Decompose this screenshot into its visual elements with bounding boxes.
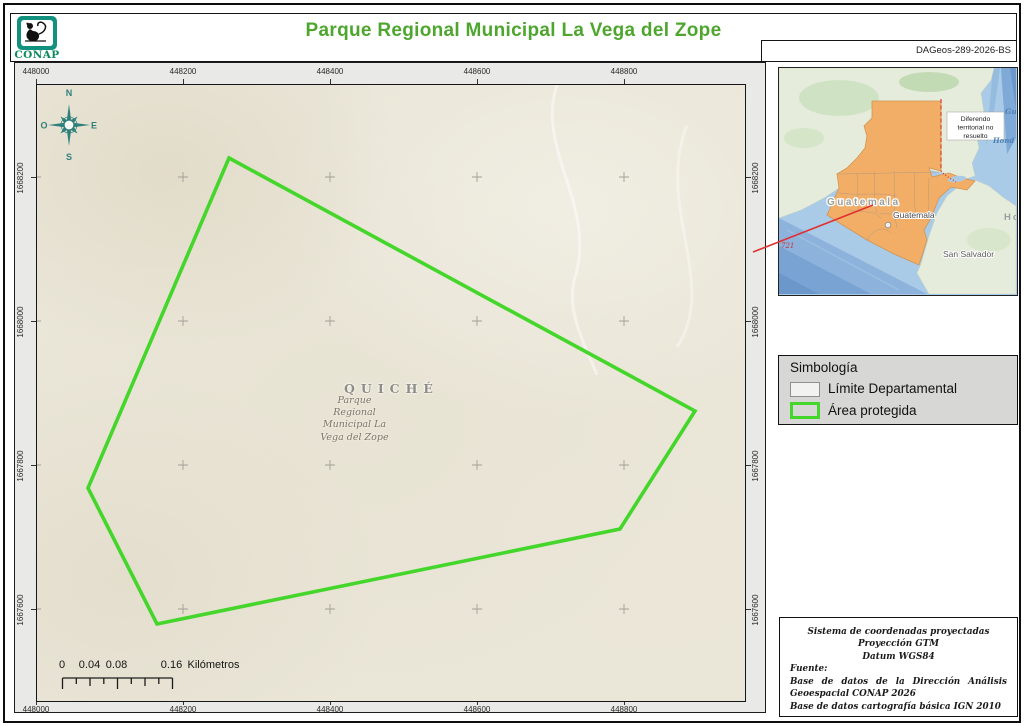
scale-label: 0.04 [76,659,104,671]
grid-label-left: 1667800 [16,444,26,488]
grid-label-left: 1667600 [16,588,26,632]
scale-label: 0.16 [158,659,186,671]
protected-area-label: Parque Regional Municipal La Vega del Zo… [305,395,405,444]
legend-item-label: Área protegida [828,403,917,418]
scale-unit-label: Kilómetros [188,659,268,671]
department-label: QUICHÉ [322,381,462,396]
compass-east-label: E [90,120,96,130]
inset-map-graphic: Diferendo territorial no resuelto Guatem… [779,68,1016,294]
grid-label-bottom: 448400 [306,705,354,714]
grid-tick [624,702,625,705]
compass-west-label: O [40,120,47,130]
map-sheet-code: DAGeos-289-2026-BS [761,40,1017,62]
grid-label-bottom: 448000 [12,705,60,714]
legend-box: Simbología Límite Departamental Área pro… [778,355,1018,425]
protected-area-label-line: Regional [305,407,405,419]
protected-area-label-line: Parque [305,395,405,407]
source-line: Base de datos de la Dirección Análisis G… [790,676,1007,701]
grid-label-top: 448400 [306,67,354,76]
grid-tick [746,177,751,178]
conap-logo-monkey-icon [21,20,53,46]
compass-rose: N E S O [39,85,99,165]
inset-location-map: Diferendo territorial no resuelto Guatem… [778,67,1018,296]
map-frame: 448000 448200 448400 448600 448800 44800… [14,62,766,713]
grid-tick [746,609,751,610]
scale-label: 0 [54,659,71,671]
grid-label-right: 1668200 [751,156,761,200]
department-boundary-swatch [790,382,820,397]
protected-area-label-line: Municipal La [305,419,405,431]
grid-label-left: 1668000 [16,300,26,344]
legend-item-label: Límite Departamental [828,381,957,396]
grid-label-top: 448600 [453,67,501,76]
grid-label-top: 448200 [159,67,207,76]
water-label-fragment: Hond [992,136,1014,145]
grid-label-bottom: 448200 [159,705,207,714]
metadata-box: Sistema de coordenadas proyectadas Proye… [779,617,1018,717]
grid-label-right: 1667800 [751,444,761,488]
grid-label-right: 1668000 [751,300,761,344]
grid-label-bottom: 448800 [600,705,648,714]
compass-south-label: S [65,152,71,162]
honduras-label-fragment: Ho [1004,212,1016,223]
grid-label-right: 1667600 [751,588,761,632]
page-title: Parque Regional Municipal La Vega del Zo… [11,20,1016,42]
crs-line: Proyección GTM [790,638,1007,650]
capital-city-dot [885,222,891,228]
grid-tick [183,702,184,705]
protected-area-swatch [790,402,820,419]
grid-tick [477,702,478,705]
san-salvador-label: San Salvador [943,249,994,259]
water-label-fragment: Gu [1005,107,1016,116]
dispute-note-line: Diferendo [961,116,991,123]
grid-tick [746,465,751,466]
conap-logo [17,16,57,50]
capital-city-label: Guatemala [893,210,935,220]
grid-tick [36,702,37,705]
crs-line: Sistema de coordenadas proyectadas [790,626,1007,638]
grid-label-bottom: 448600 [453,705,501,714]
grid-tick [330,702,331,705]
crs-line: Datum WGS84 [790,651,1007,663]
country-label: Guatemala [827,197,901,208]
dispute-note-line: territorial no [958,125,994,132]
grid-label-top: 448000 [12,67,60,76]
source-line: Base de datos cartografía básica IGN 201… [790,701,1007,713]
scale-label: 0.08 [103,659,131,671]
legend-title: Simbología [790,360,858,375]
conap-logo-caption: CONAP [12,49,62,61]
map-canvas: N E S O QUICHÉ Parque Regional Municipal… [36,84,746,702]
road-number-label: 721 [781,242,794,250]
scale-bar: 0 0.04 0.08 0.16 Kilómetros [49,659,279,695]
grid-label-left: 1668200 [16,156,26,200]
scale-bar-ruler [49,675,279,693]
grid-label-top: 448800 [600,67,648,76]
dispute-note-line: resuelto [963,133,987,140]
grid-tick [746,321,751,322]
compass-north-label: N [65,88,72,98]
protected-area-label-line: Vega del Zope [305,432,405,444]
source-label: Fuente: [790,663,1007,675]
